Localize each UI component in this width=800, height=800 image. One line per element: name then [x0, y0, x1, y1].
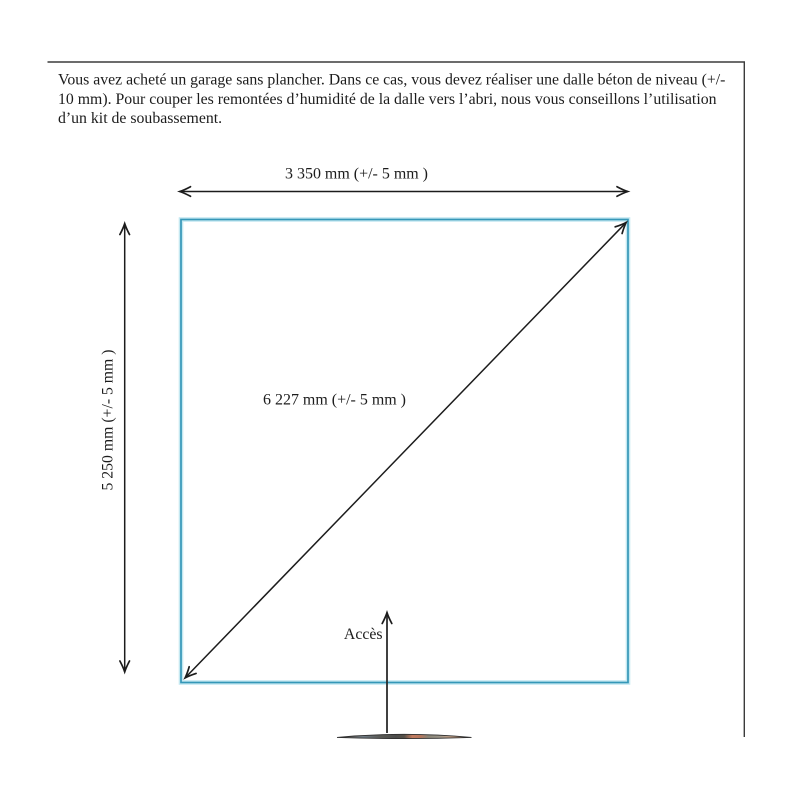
- svg-text:6 227 mm (+/- 5 mm ): 6 227 mm (+/- 5 mm ): [263, 391, 406, 408]
- svg-text:3 350 mm (+/- 5 mm ): 3 350 mm (+/- 5 mm ): [285, 166, 428, 183]
- svg-text:Vous avez acheté un garage san: Vous avez acheté un garage sans plancher…: [58, 72, 725, 89]
- svg-text:5 250 mm (+/- 5 mm ): 5 250 mm (+/- 5 mm ): [100, 350, 117, 491]
- svg-text:10 mm). Pour couper les remont: 10 mm). Pour couper les remontées d’humi…: [58, 91, 717, 108]
- svg-text:Accès: Accès: [344, 626, 383, 643]
- svg-text:d’un kit de soubassement.: d’un kit de soubassement.: [58, 110, 222, 127]
